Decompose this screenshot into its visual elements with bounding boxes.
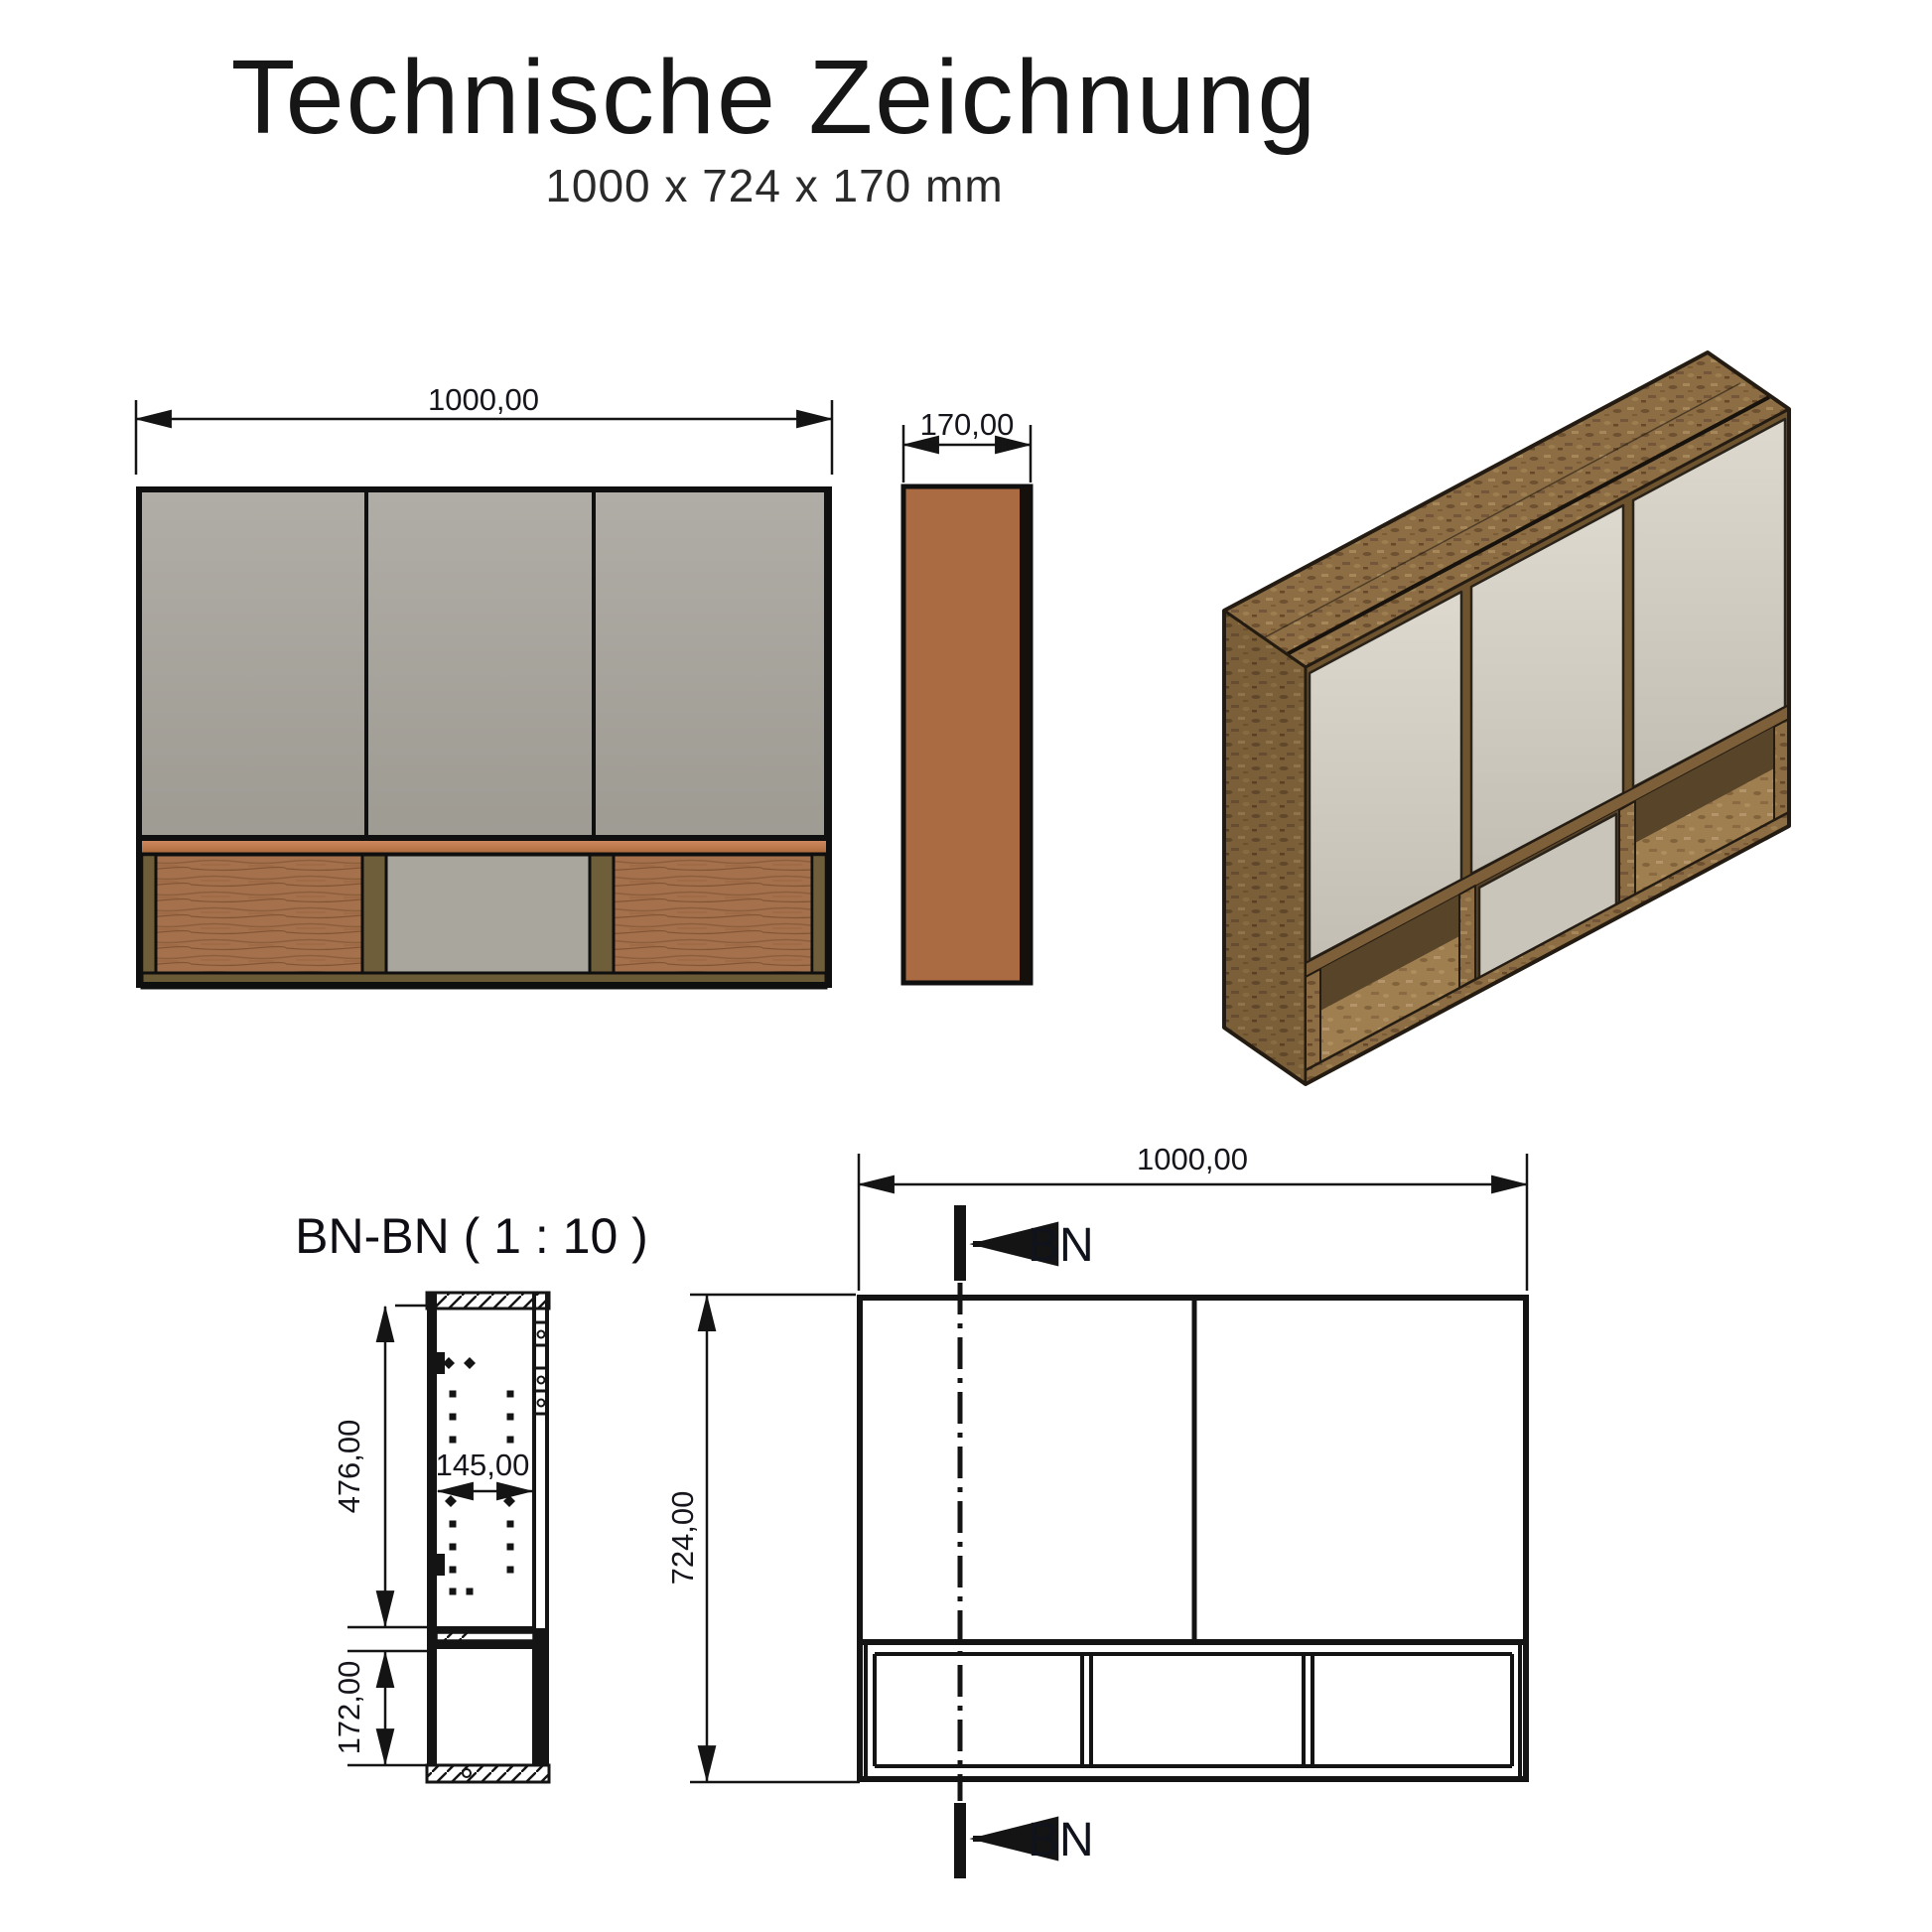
front-width-dimension: 1000,00 — [136, 382, 832, 475]
front-door-middle — [366, 489, 594, 837]
section-inner-depth-dimension: 145,00 — [436, 1448, 532, 1491]
iso-view — [1224, 352, 1789, 1084]
iso-post-4 — [1774, 719, 1789, 820]
side-back-edge — [1020, 487, 1030, 982]
front-divider-left — [362, 855, 386, 973]
side-depth-dimension: 170,00 — [903, 407, 1031, 483]
elevation-view: 1000,00 724,00 — [665, 1142, 1527, 1878]
elevation-height-label: 724,00 — [665, 1491, 700, 1586]
side-panel — [903, 486, 1031, 983]
section-bottom-cap — [428, 1766, 548, 1781]
front-door-right — [594, 489, 826, 837]
front-compartment-wood-right — [614, 855, 812, 973]
elevation-bn-label-bottom: BN — [1028, 1814, 1094, 1866]
drawing-canvas: 1000,00 — [0, 0, 1932, 1932]
iso-post-2 — [1459, 886, 1475, 988]
section-back-wall — [532, 1293, 549, 1782]
front-wood-strip — [142, 841, 826, 853]
section-title: BN-BN ( 1 : 10 ) — [295, 1208, 648, 1264]
section-view: BN-BN ( 1 : 10 ) — [295, 1208, 648, 1782]
section-inner-depth-label: 145,00 — [436, 1448, 530, 1482]
section-hinge-cup-1 — [427, 1352, 445, 1374]
section-lower-height-dimension: 172,00 — [332, 1651, 434, 1765]
elevation-bn-label-top: BN — [1028, 1219, 1094, 1272]
section-top-cap — [428, 1294, 548, 1308]
front-divider-right — [590, 855, 614, 973]
section-lower-height-label: 172,00 — [332, 1661, 366, 1755]
elevation-bn-marker-bottom: BN — [954, 1803, 1094, 1878]
front-view: 1000,00 — [136, 382, 832, 988]
technical-drawing-page: Technische Zeichnung 1000 x 724 x 170 mm — [0, 0, 1932, 1932]
front-cabinet — [136, 486, 832, 988]
front-compartment-wood-left — [156, 855, 362, 973]
iso-post-3 — [1619, 801, 1635, 903]
section-upper-height-label: 476,00 — [332, 1420, 366, 1514]
elevation-width-label: 1000,00 — [1137, 1142, 1248, 1176]
section-hinge-cup-2 — [427, 1554, 445, 1576]
elevation-bn-marker-top: BN — [954, 1205, 1094, 1281]
side-view: 170,00 — [903, 407, 1031, 983]
front-post-left — [142, 855, 156, 973]
side-depth-label: 170,00 — [920, 407, 1015, 442]
section-upper-height-dimension: 476,00 — [332, 1306, 429, 1627]
section-shelf-board — [437, 1626, 533, 1649]
elevation-height-dimension: 724,00 — [665, 1295, 860, 1782]
front-width-label: 1000,00 — [428, 382, 539, 417]
front-door-left — [140, 489, 366, 837]
front-compartment-gray — [386, 855, 590, 973]
iso-post-1 — [1306, 969, 1320, 1070]
front-post-right — [812, 855, 826, 973]
